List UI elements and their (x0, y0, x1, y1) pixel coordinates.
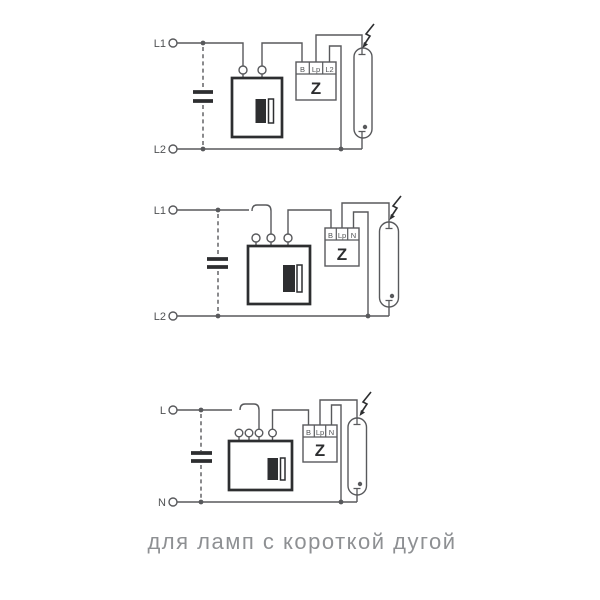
ballast-terminal (284, 234, 292, 242)
junction-dot (201, 41, 206, 46)
ignitor-terminal-label: B (306, 428, 311, 437)
ballast-terminal (258, 66, 266, 74)
ballast-wiring-diagram-page: L1 L2 B Lp (0, 0, 600, 600)
ignitor-terminal-label: Lp (312, 65, 320, 74)
supply-label-bottom: L2 (154, 144, 166, 156)
capacitor-icon (191, 453, 212, 461)
junction-dot (201, 147, 206, 152)
circuit-diagram: L1 L2 B Lp (0, 0, 600, 600)
supply-terminal-bottom (169, 145, 177, 153)
ballast-box (232, 66, 282, 137)
ignitor-terminal-label: Lp (316, 428, 324, 437)
high-voltage-bolt-icon (390, 196, 402, 220)
ignitor-terminal-label: N (329, 428, 334, 437)
ignitor-label: Z (337, 245, 347, 264)
junction-dot (199, 500, 204, 505)
lamp-dot (390, 294, 394, 298)
core (297, 265, 302, 292)
capacitor-icon (207, 259, 228, 267)
ignitor-terminal-label: B (300, 65, 305, 74)
ballast-box (248, 234, 310, 304)
circuit-bottom: L N (158, 392, 371, 509)
ballast-box (229, 429, 292, 490)
diagram-caption: для ламп с короткой дугой (147, 529, 456, 554)
ballast-terminal (255, 429, 263, 437)
junction-dot (366, 314, 371, 319)
winding (256, 99, 267, 123)
circuit-middle: L1 L2 (154, 196, 401, 323)
jumper-link-icon (252, 205, 271, 211)
lamp-icon (354, 48, 372, 138)
supply-terminal-bottom (169, 498, 177, 506)
lamp-icon (348, 418, 367, 495)
supply-terminal-top (169, 406, 177, 414)
lamp-icon (380, 222, 399, 307)
ignitor-label: Z (315, 441, 325, 460)
supply-label-top: L1 (154, 38, 166, 50)
core (269, 99, 274, 123)
winding (283, 265, 295, 292)
ignitor-terminal-label: N (351, 231, 356, 240)
core (281, 458, 286, 480)
ignitor-label: Z (311, 79, 321, 98)
jumper-link-icon (240, 404, 259, 410)
ignitor-box: B Lp N Z (325, 228, 359, 266)
supply-terminal-bottom (169, 312, 177, 320)
supply-label-bottom: N (158, 497, 166, 509)
ignitor-terminal-label: L2 (325, 65, 333, 74)
ignitor-terminal-label: Lp (338, 231, 346, 240)
circuit-top: L1 L2 B Lp (154, 24, 374, 156)
ballast-terminal (235, 429, 243, 437)
junction-dot (199, 408, 204, 413)
winding (268, 458, 279, 480)
ballast-terminal (239, 66, 247, 74)
ignitor-terminal-label: B (328, 231, 333, 240)
ballast-terminal (252, 234, 260, 242)
junction-dot (216, 314, 221, 319)
lamp-dot (363, 125, 367, 129)
supply-terminal-top (169, 206, 177, 214)
junction-dot (339, 500, 344, 505)
wire (177, 43, 243, 66)
supply-terminal-top (169, 39, 177, 47)
lamp-dot (358, 482, 362, 486)
ballast-terminal (269, 429, 277, 437)
ballast-terminal (245, 429, 253, 437)
supply-label-top: L (160, 405, 166, 417)
capacitor-icon (193, 92, 213, 101)
high-voltage-bolt-icon (360, 392, 372, 416)
junction-dot (216, 208, 221, 213)
ignitor-box: B Lp N Z (303, 425, 337, 462)
junction-dot (339, 147, 344, 152)
ignitor-box: B Lp L2 Z (296, 62, 336, 100)
supply-label-bottom: L2 (154, 311, 166, 323)
supply-label-top: L1 (154, 205, 166, 217)
high-voltage-bolt-icon (363, 24, 375, 48)
ballast-terminal (267, 234, 275, 242)
